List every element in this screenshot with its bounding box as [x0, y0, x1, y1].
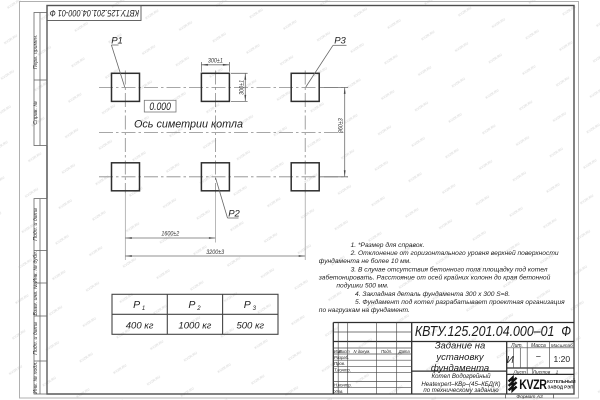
svg-text:Подп.: Подп. [381, 349, 392, 354]
svg-text:Инв. № дубл.: Инв. № дубл. [33, 251, 39, 283]
svg-text:Дата: Дата [398, 349, 411, 354]
svg-text:КВТУ.125.201.04.000–01 Ф: КВТУ.125.201.04.000–01 Ф [415, 323, 571, 339]
svg-text:300±1: 300±1 [208, 58, 223, 65]
svg-text:5. Фундамент под котел разраб: 5. Фундамент под котел разрабатывает про… [355, 298, 565, 306]
svg-text:КВТУ.125.201.04.000-01 Ф: КВТУ.125.201.04.000-01 Ф [49, 8, 139, 18]
svg-text:Лист: Лист [338, 349, 350, 354]
svg-text:КОТЕЛЬНЫЙ: КОТЕЛЬНЫЙ [547, 379, 576, 384]
svg-text:забетонировать. Расстояние от: забетонировать. Расстояние от осей крайн… [318, 274, 551, 282]
svg-text:Подп. и дата: Подп. и дата [33, 208, 39, 241]
svg-text:1: 1 [556, 369, 559, 375]
svg-text:Перв. примен.: Перв. примен. [33, 35, 39, 69]
svg-text:по техническому заданию: по техническому заданию [423, 387, 499, 394]
svg-text:4. Закладная деталь фундамен: 4. Закладная деталь фундамента 300 х 300… [355, 290, 510, 298]
svg-text:P3: P3 [334, 36, 346, 47]
svg-text:N докум.: N докум. [354, 349, 371, 354]
svg-text:Н.контр.: Н.контр. [334, 383, 352, 388]
svg-text:Формат А3: Формат А3 [516, 394, 543, 400]
svg-text:Инв. № подл.: Инв. № подл. [33, 361, 39, 393]
svg-text:Пров.: Пров. [334, 361, 345, 366]
svg-text:И: И [507, 355, 515, 366]
svg-text:Лит.: Лит. [510, 343, 523, 349]
svg-text:500 кг: 500 кг [236, 321, 264, 332]
svg-text:Масштаб: Масштаб [551, 343, 573, 348]
svg-text:Лист: Лист [513, 369, 526, 375]
svg-text:Масса: Масса [531, 343, 546, 349]
svg-text:Справ. №: Справ. № [33, 101, 39, 125]
svg-text:Разраб.: Разраб. [334, 355, 349, 360]
svg-text:P: P [244, 299, 251, 311]
svg-text:Подп. и дата: Подп. и дата [33, 322, 39, 355]
svg-text:300±1: 300±1 [239, 80, 246, 95]
svg-text:1: 1 [142, 306, 145, 312]
svg-text:3. В случае отсутствия бетонн: 3. В случае отсутствия бетонного пола пл… [351, 265, 548, 273]
svg-text:KVZR: KVZR [519, 377, 547, 393]
svg-text:960±3: 960±3 [338, 118, 345, 134]
svg-text:1. *Размер для справок.: 1. *Размер для справок. [351, 241, 425, 249]
svg-text:2. Отклонение от горизонтальн: 2. Отклонение от горизонтального уровня … [350, 249, 559, 257]
svg-text:1000 кг: 1000 кг [178, 321, 211, 332]
svg-text:подушки 500 мм.: подушки 500 мм. [336, 282, 388, 290]
svg-text:2: 2 [196, 306, 201, 312]
svg-text:1600±2: 1600±2 [161, 231, 180, 238]
svg-text:по нагрузкам на фундамент.: по нагрузкам на фундамент. [319, 306, 410, 314]
svg-text:–: – [535, 352, 541, 361]
svg-text:1:20: 1:20 [554, 354, 571, 364]
svg-text:ЗАВОД РЭП: ЗАВОД РЭП [548, 385, 574, 390]
svg-text:P: P [188, 299, 195, 311]
svg-text:P2: P2 [228, 208, 240, 219]
svg-text:Котел Водогрейный: Котел Водогрейный [432, 373, 492, 380]
svg-text:Листов: Листов [532, 369, 551, 375]
svg-text:P: P [133, 299, 140, 311]
svg-text:фундамента не более 10 мм.: фундамента не более 10 мм. [319, 257, 411, 265]
svg-text:P1: P1 [111, 35, 123, 46]
svg-text:Взам. инв. №: Взам. инв. № [33, 283, 39, 315]
svg-text:Т.контр.: Т.контр. [334, 367, 351, 372]
svg-text:400 кг: 400 кг [126, 321, 154, 332]
svg-text:Задание на: Задание на [435, 341, 486, 352]
svg-text:установку: установку [435, 352, 485, 363]
svg-text:Утв.: Утв. [334, 389, 344, 394]
svg-text:3200±3: 3200±3 [206, 249, 225, 256]
svg-text:Ось симетрии котла: Ось симетрии котла [134, 119, 243, 131]
svg-text:0.000: 0.000 [149, 101, 171, 113]
